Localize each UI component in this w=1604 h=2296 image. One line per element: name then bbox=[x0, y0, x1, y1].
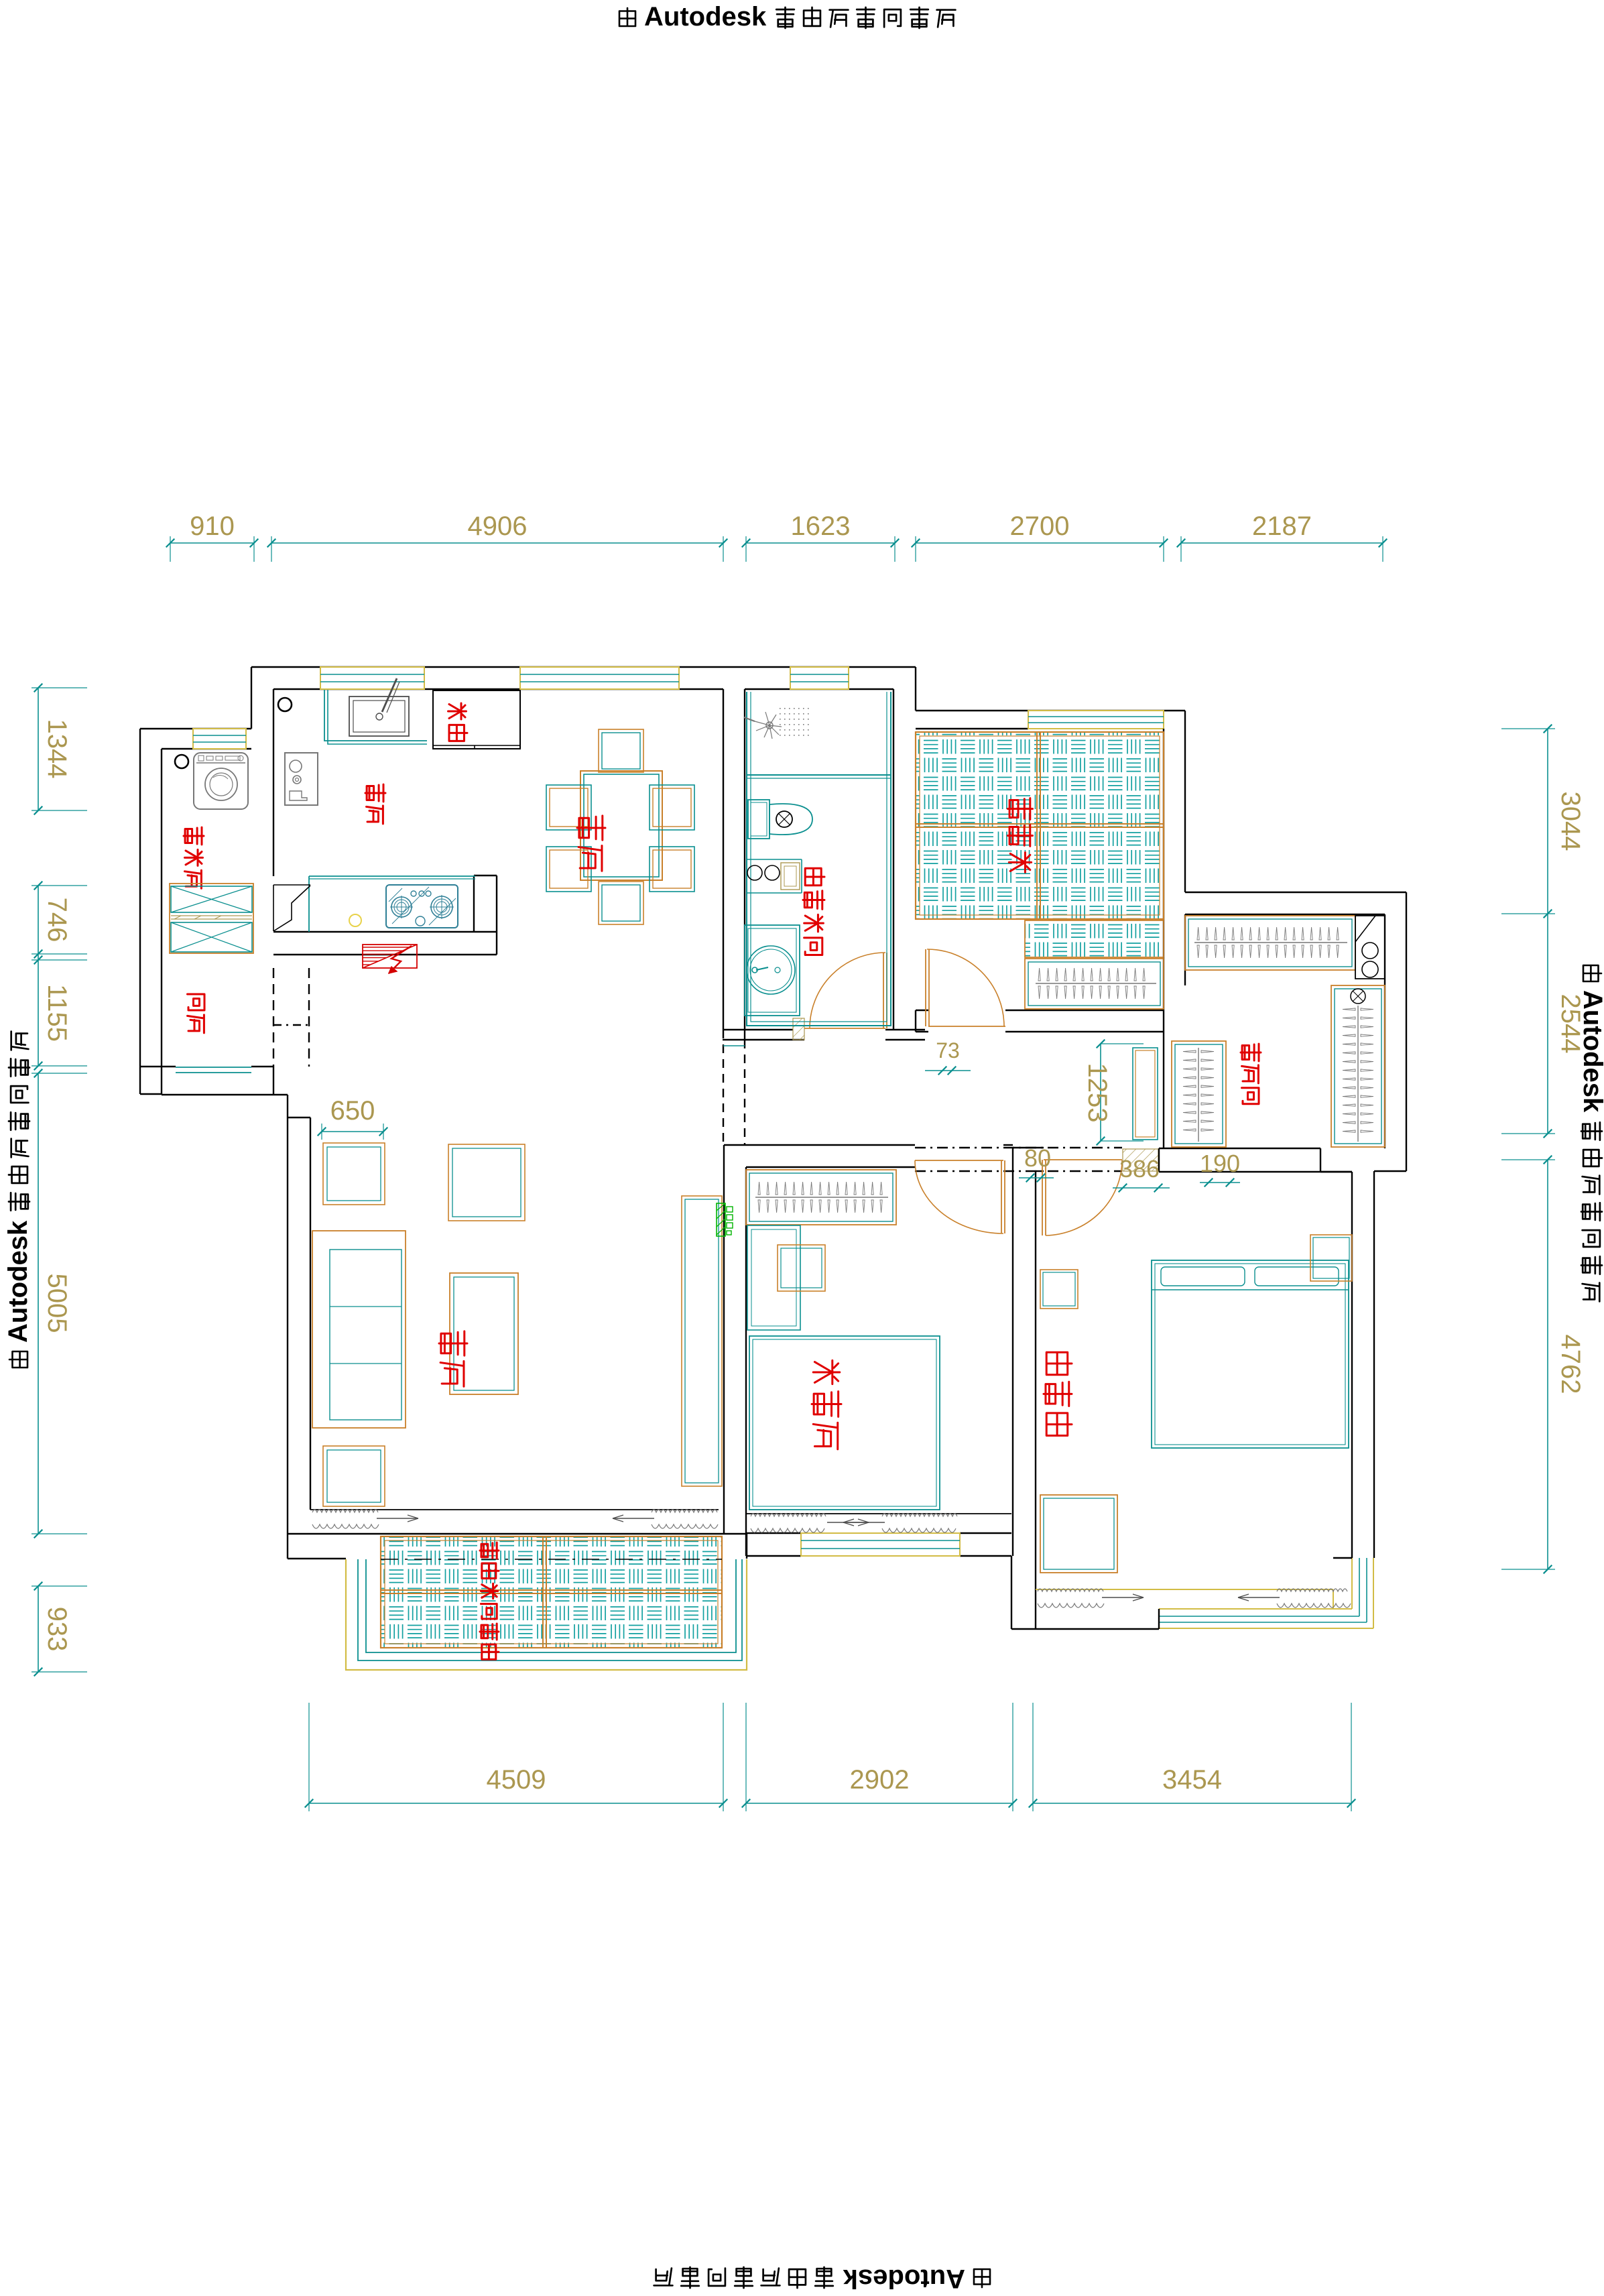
svg-text:Autodesk: Autodesk bbox=[1578, 990, 1604, 1113]
svg-text:746: 746 bbox=[42, 898, 72, 943]
svg-text:3454: 3454 bbox=[1162, 1765, 1222, 1795]
svg-text:Autodesk: Autodesk bbox=[3, 1220, 33, 1343]
svg-text:2902: 2902 bbox=[850, 1765, 910, 1795]
svg-text:5005: 5005 bbox=[42, 1274, 72, 1333]
svg-text:4509: 4509 bbox=[487, 1765, 546, 1795]
svg-text:4762: 4762 bbox=[1556, 1335, 1585, 1394]
svg-text:3044: 3044 bbox=[1556, 792, 1585, 851]
svg-text:933: 933 bbox=[42, 1607, 72, 1652]
svg-text:Autodesk: Autodesk bbox=[843, 2264, 965, 2293]
svg-text:910: 910 bbox=[190, 511, 235, 541]
svg-text:1623: 1623 bbox=[791, 511, 851, 541]
svg-text:1253: 1253 bbox=[1083, 1063, 1112, 1123]
svg-text:73: 73 bbox=[936, 1038, 960, 1063]
svg-text:2187: 2187 bbox=[1252, 511, 1312, 541]
svg-text:386: 386 bbox=[1119, 1155, 1160, 1183]
svg-text:80: 80 bbox=[1024, 1144, 1051, 1172]
svg-text:1344: 1344 bbox=[42, 719, 72, 779]
svg-text:Autodesk: Autodesk bbox=[644, 2, 767, 32]
svg-text:2700: 2700 bbox=[1010, 511, 1070, 541]
svg-text:1155: 1155 bbox=[42, 984, 72, 1042]
svg-text:650: 650 bbox=[330, 1096, 375, 1126]
svg-text:4906: 4906 bbox=[468, 511, 528, 541]
svg-text:190: 190 bbox=[1200, 1150, 1240, 1177]
